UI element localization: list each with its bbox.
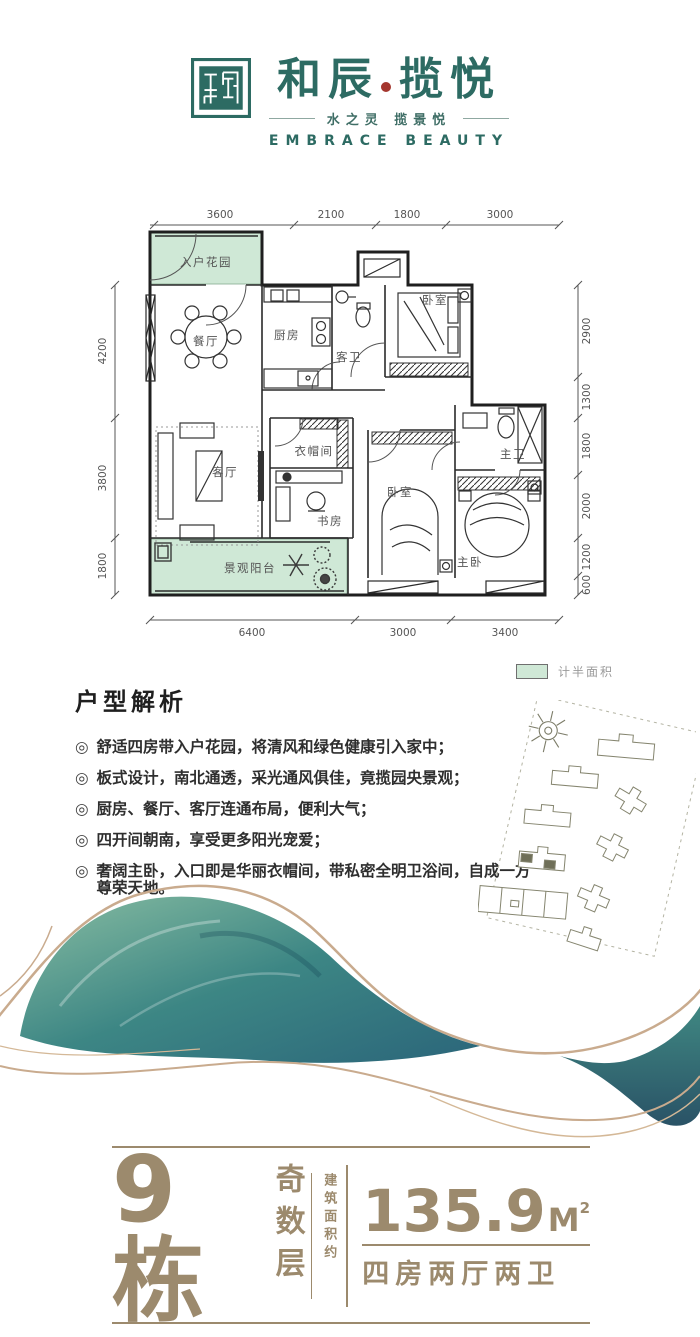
dim-label: 2000 xyxy=(581,493,593,520)
feature-bullet: ◎ 板式设计，南北通透，采光通风俱佳，竟揽园央景观； xyxy=(75,770,545,787)
layout-text: 四房两厅两卫 xyxy=(362,1252,590,1291)
brand-subtitle-en: EMBRACE BEAUTY xyxy=(269,133,509,149)
poster-page: 和辰 揽悦 水之灵 揽景悦 EMBRACE BEAUTY xyxy=(0,0,700,1337)
legend-swatch xyxy=(516,664,548,679)
compass-icon xyxy=(524,707,572,757)
area-divider-line xyxy=(362,1244,590,1246)
area-value: 135.9 xyxy=(362,1182,545,1240)
dim-label: 1200 xyxy=(581,544,593,571)
room-label-cloakroom: 衣帽间 xyxy=(295,444,334,458)
watercolor-mountain-art xyxy=(0,856,700,1148)
furniture-living xyxy=(156,423,264,545)
room-label-entry-garden: 入户花园 xyxy=(180,255,232,269)
dim-label: 600 xyxy=(581,575,593,595)
room-label-study: 书房 xyxy=(317,514,343,528)
dim-label: 3600 xyxy=(207,209,234,221)
legend-label: 计半面积 xyxy=(558,663,614,680)
room-label-guest-bath: 客卫 xyxy=(336,350,362,364)
dim-label: 3400 xyxy=(492,627,519,639)
area-unit-sup: 2 xyxy=(580,1199,590,1217)
analysis-title: 户型解析 xyxy=(75,682,545,717)
room-label-bedroom-top: 卧室 xyxy=(422,293,448,307)
room-label-master-bath: 主卫 xyxy=(500,447,526,461)
feature-bullet: ◎ 舒适四房带入户花园，将清风和绿色健康引入家中； xyxy=(75,739,545,756)
furniture-bedroom-mid xyxy=(382,489,452,575)
dim-label: 1800 xyxy=(581,433,593,460)
bullet-mark-icon: ◎ xyxy=(75,801,89,818)
room-label-living: 客厅 xyxy=(212,465,238,479)
room-label-master-bed: 主卧 xyxy=(457,555,483,569)
feature-bullet: ◎ 四开间朝南，享受更多阳光宠爱； xyxy=(75,832,545,849)
furniture-guest-bath xyxy=(336,291,370,327)
brand-name-first: 和辰 xyxy=(277,58,379,102)
subtitle-line-right xyxy=(463,118,509,119)
brand-header: 和辰 揽悦 水之灵 揽景悦 EMBRACE BEAUTY xyxy=(0,58,700,149)
footer-divider-thin xyxy=(311,1173,312,1299)
feature-text: 板式设计，南北通透，采光通风俱佳，竟揽园央景观； xyxy=(97,770,469,787)
dim-label: 3000 xyxy=(487,209,514,221)
bullet-mark-icon: ◎ xyxy=(75,832,89,849)
brand-separator-dot-icon xyxy=(381,82,391,92)
dim-label: 2100 xyxy=(318,209,345,221)
footer-divider-thick xyxy=(346,1165,348,1307)
floorplan-diagram: 3600 2100 1800 3000 6400 3000 3400 4200 … xyxy=(0,185,700,655)
dim-label: 2900 xyxy=(581,318,593,345)
brand-text-block: 和辰 揽悦 水之灵 揽景悦 EMBRACE BEAUTY xyxy=(269,58,510,149)
footer-section: 9栋 奇数层 建筑面积约 135.9 M 2 四房两厅两卫 xyxy=(112,1146,590,1324)
feature-bullet: ◎ 厨房、餐厅、客厅连通布局，便利大气； xyxy=(75,801,545,818)
dim-label: 6400 xyxy=(239,627,266,639)
room-label-kitchen: 厨房 xyxy=(274,328,300,342)
dim-label: 4200 xyxy=(97,338,109,365)
room-label-dining: 餐厅 xyxy=(193,334,219,348)
plan-legend: 计半面积 xyxy=(516,663,614,680)
footer-row: 9栋 奇数层 建筑面积约 135.9 M 2 四房两厅两卫 xyxy=(112,1160,590,1312)
floorplan-container: 3600 2100 1800 3000 6400 3000 3400 4200 … xyxy=(0,185,700,655)
floor-type-label: 奇数层 xyxy=(269,1163,305,1309)
bullet-mark-icon: ◎ xyxy=(75,770,89,787)
area-block: 135.9 M 2 四房两厅两卫 xyxy=(362,1182,590,1291)
feature-text: 四开间朝南，享受更多阳光宠爱； xyxy=(97,832,330,849)
dim-label: 1800 xyxy=(97,553,109,580)
brand-name: 和辰 揽悦 xyxy=(277,58,501,102)
room-label-bedroom-mid: 卧室 xyxy=(387,485,413,499)
dim-label: 3000 xyxy=(390,627,417,639)
brand-subtitle-row: 水之灵 揽景悦 xyxy=(269,109,510,128)
building-number: 9栋 xyxy=(112,1144,239,1328)
dim-label: 1800 xyxy=(394,209,421,221)
area-figure: 135.9 M 2 xyxy=(362,1182,590,1240)
furniture-master-bed xyxy=(459,481,541,557)
subtitle-line-left xyxy=(269,118,315,119)
area-unit: M xyxy=(548,1201,580,1239)
brand-seal-icon xyxy=(191,58,251,118)
room-label-balcony: 景观阳台 xyxy=(224,561,276,575)
dim-label: 1300 xyxy=(581,384,593,411)
feature-text: 厨房、餐厅、客厅连通布局，便利大气； xyxy=(97,801,376,818)
brand-name-second: 揽悦 xyxy=(399,58,501,102)
dim-label: 3800 xyxy=(97,465,109,492)
area-approx-label: 建筑面积约 xyxy=(321,1173,337,1299)
feature-text: 舒适四房带入户花园，将清风和绿色健康引入家中； xyxy=(97,739,454,756)
bullet-mark-icon: ◎ xyxy=(75,739,89,756)
brand-subtitle: 水之灵 揽景悦 xyxy=(327,109,452,128)
